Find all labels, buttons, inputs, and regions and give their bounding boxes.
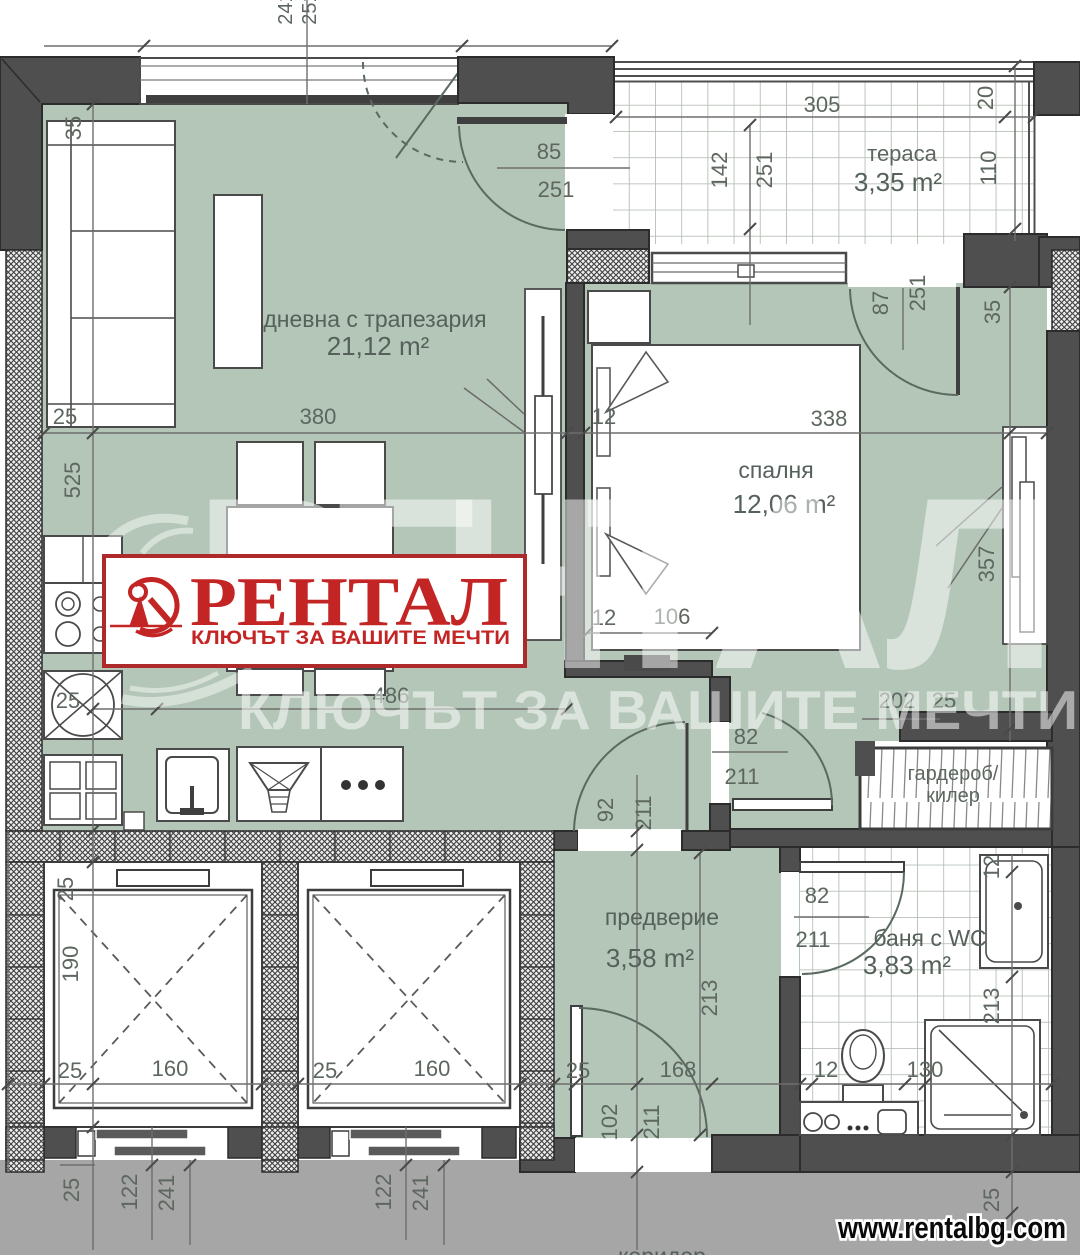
svg-text:142: 142 bbox=[707, 152, 732, 189]
svg-text:122: 122 bbox=[371, 1174, 396, 1211]
svg-text:тераса: тераса bbox=[867, 141, 938, 166]
svg-text:87: 87 bbox=[868, 291, 893, 315]
svg-text:дневна с трапезария: дневна с трапезария bbox=[263, 306, 486, 332]
svg-text:25: 25 bbox=[566, 1058, 590, 1083]
svg-text:гардероб/: гардероб/ bbox=[908, 763, 999, 785]
svg-text:предверие: предверие bbox=[605, 904, 719, 930]
svg-text:241: 241 bbox=[275, 0, 297, 25]
svg-text:338: 338 bbox=[811, 406, 848, 431]
svg-text:130: 130 bbox=[907, 1057, 944, 1082]
svg-text:380: 380 bbox=[300, 404, 337, 429]
svg-text:211: 211 bbox=[631, 795, 656, 830]
svg-text:110: 110 bbox=[976, 150, 1001, 185]
svg-text:3,83 m²: 3,83 m² bbox=[863, 950, 951, 980]
svg-text:12: 12 bbox=[814, 1057, 838, 1082]
svg-text:213: 213 bbox=[697, 980, 722, 1017]
svg-text:12: 12 bbox=[592, 404, 616, 429]
svg-text:баня с WC: баня с WC bbox=[873, 925, 986, 951]
svg-text:190: 190 bbox=[58, 946, 83, 983]
svg-text:25: 25 bbox=[58, 1058, 82, 1083]
svg-text:21,12 m²: 21,12 m² bbox=[327, 331, 430, 361]
svg-text:92: 92 bbox=[593, 798, 618, 822]
svg-text:25: 25 bbox=[53, 877, 78, 901]
svg-text:241: 241 bbox=[408, 1175, 433, 1212]
svg-text:251: 251 bbox=[752, 152, 777, 189]
svg-text:213: 213 bbox=[979, 988, 1004, 1025]
svg-text:251: 251 bbox=[905, 275, 930, 312]
svg-text:12: 12 bbox=[979, 855, 1004, 879]
svg-text:525: 525 bbox=[60, 462, 85, 499]
svg-text:www.rentalbg.com: www.rentalbg.com bbox=[837, 1210, 1066, 1245]
svg-text:25: 25 bbox=[313, 1058, 337, 1083]
svg-text:3,58 m²: 3,58 m² bbox=[606, 943, 694, 973]
svg-text:3,35 m²: 3,35 m² bbox=[854, 167, 942, 197]
svg-text:241: 241 bbox=[154, 1175, 179, 1212]
svg-text:85: 85 bbox=[537, 139, 561, 164]
svg-text:25: 25 bbox=[56, 688, 80, 713]
svg-text:82: 82 bbox=[805, 883, 829, 908]
svg-text:102: 102 bbox=[597, 1104, 622, 1141]
svg-text:КЛЮЧЪТ ЗА ВАШИТЕ МЕЧТИ: КЛЮЧЪТ ЗА ВАШИТЕ МЕЧТИ bbox=[238, 679, 1078, 741]
svg-text:251: 251 bbox=[538, 177, 575, 202]
svg-text:168: 168 bbox=[660, 1057, 697, 1082]
svg-text:20: 20 bbox=[973, 86, 998, 110]
svg-text:160: 160 bbox=[152, 1056, 189, 1081]
svg-text:211: 211 bbox=[795, 927, 830, 952]
svg-text:35: 35 bbox=[61, 116, 86, 140]
svg-text:25: 25 bbox=[53, 404, 77, 429]
svg-text:305: 305 bbox=[804, 92, 841, 117]
svg-text:122: 122 bbox=[117, 1174, 142, 1211]
svg-text:160: 160 bbox=[414, 1056, 451, 1081]
svg-text:килер: килер bbox=[926, 785, 980, 807]
svg-text:25: 25 bbox=[979, 1188, 1004, 1212]
svg-text:коридор: коридор bbox=[618, 1243, 706, 1255]
svg-text:211: 211 bbox=[724, 764, 759, 789]
svg-text:35: 35 bbox=[980, 300, 1005, 324]
svg-text:211: 211 bbox=[639, 1104, 664, 1139]
svg-text:251: 251 bbox=[299, 0, 321, 25]
svg-text:КЛЮЧЪТ ЗА ВАШИТЕ МЕЧТИ: КЛЮЧЪТ ЗА ВАШИТЕ МЕЧТИ bbox=[191, 628, 510, 649]
svg-text:25: 25 bbox=[59, 1178, 84, 1202]
